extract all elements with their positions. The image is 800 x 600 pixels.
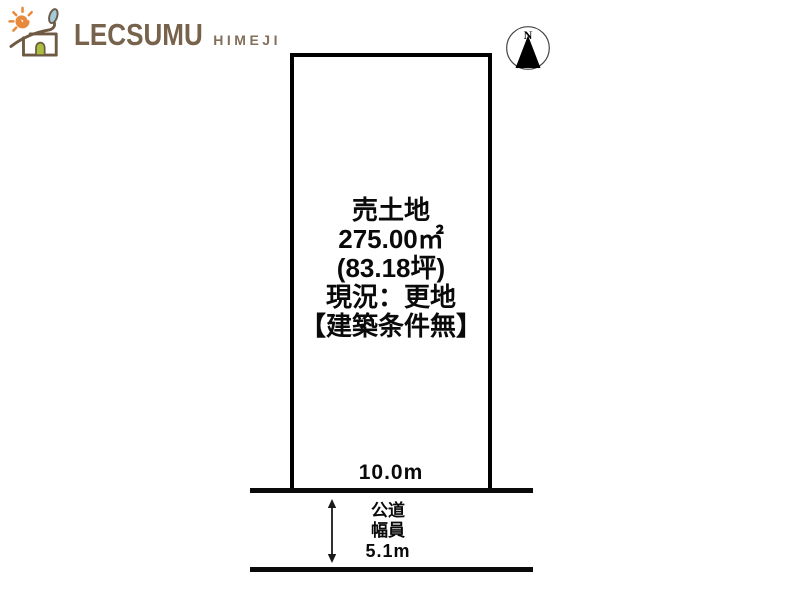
brand-region: HIMEJI bbox=[213, 33, 281, 47]
north-compass-icon: N bbox=[505, 25, 551, 71]
land-plot-flyer: LECSUMU HIMEJI N 売土地 275.00㎡ (83.18坪) 現況… bbox=[0, 0, 800, 600]
plot-title: 売土地 bbox=[290, 196, 492, 225]
plot-current-status: 現況：更地 bbox=[290, 283, 492, 312]
plot-area-sqm: 275.00㎡ bbox=[290, 225, 492, 254]
frontage-dimension-label: 10.0m bbox=[290, 461, 492, 485]
road-width-arrow-icon bbox=[324, 498, 340, 564]
plot-building-condition: 【建築条件無】 bbox=[290, 312, 492, 341]
road-edge-line-bottom bbox=[250, 567, 533, 572]
house-logo-icon bbox=[8, 6, 64, 58]
road-info-block: 公道 幅員 5.1m bbox=[348, 501, 428, 562]
road-width-value: 5.1m bbox=[348, 541, 428, 562]
road-width-label: 幅員 bbox=[348, 521, 428, 541]
lecsumu-logo: LECSUMU HIMEJI bbox=[8, 6, 281, 58]
plot-area-tsubo: (83.18坪) bbox=[290, 254, 492, 283]
road-type-label: 公道 bbox=[348, 501, 428, 521]
brand-text: LECSUMU HIMEJI bbox=[74, 19, 281, 50]
road-edge-line-top bbox=[250, 488, 533, 493]
plot-info-block: 売土地 275.00㎡ (83.18坪) 現況：更地 【建築条件無】 bbox=[290, 196, 492, 341]
brand-name: LECSUMU bbox=[74, 19, 203, 50]
